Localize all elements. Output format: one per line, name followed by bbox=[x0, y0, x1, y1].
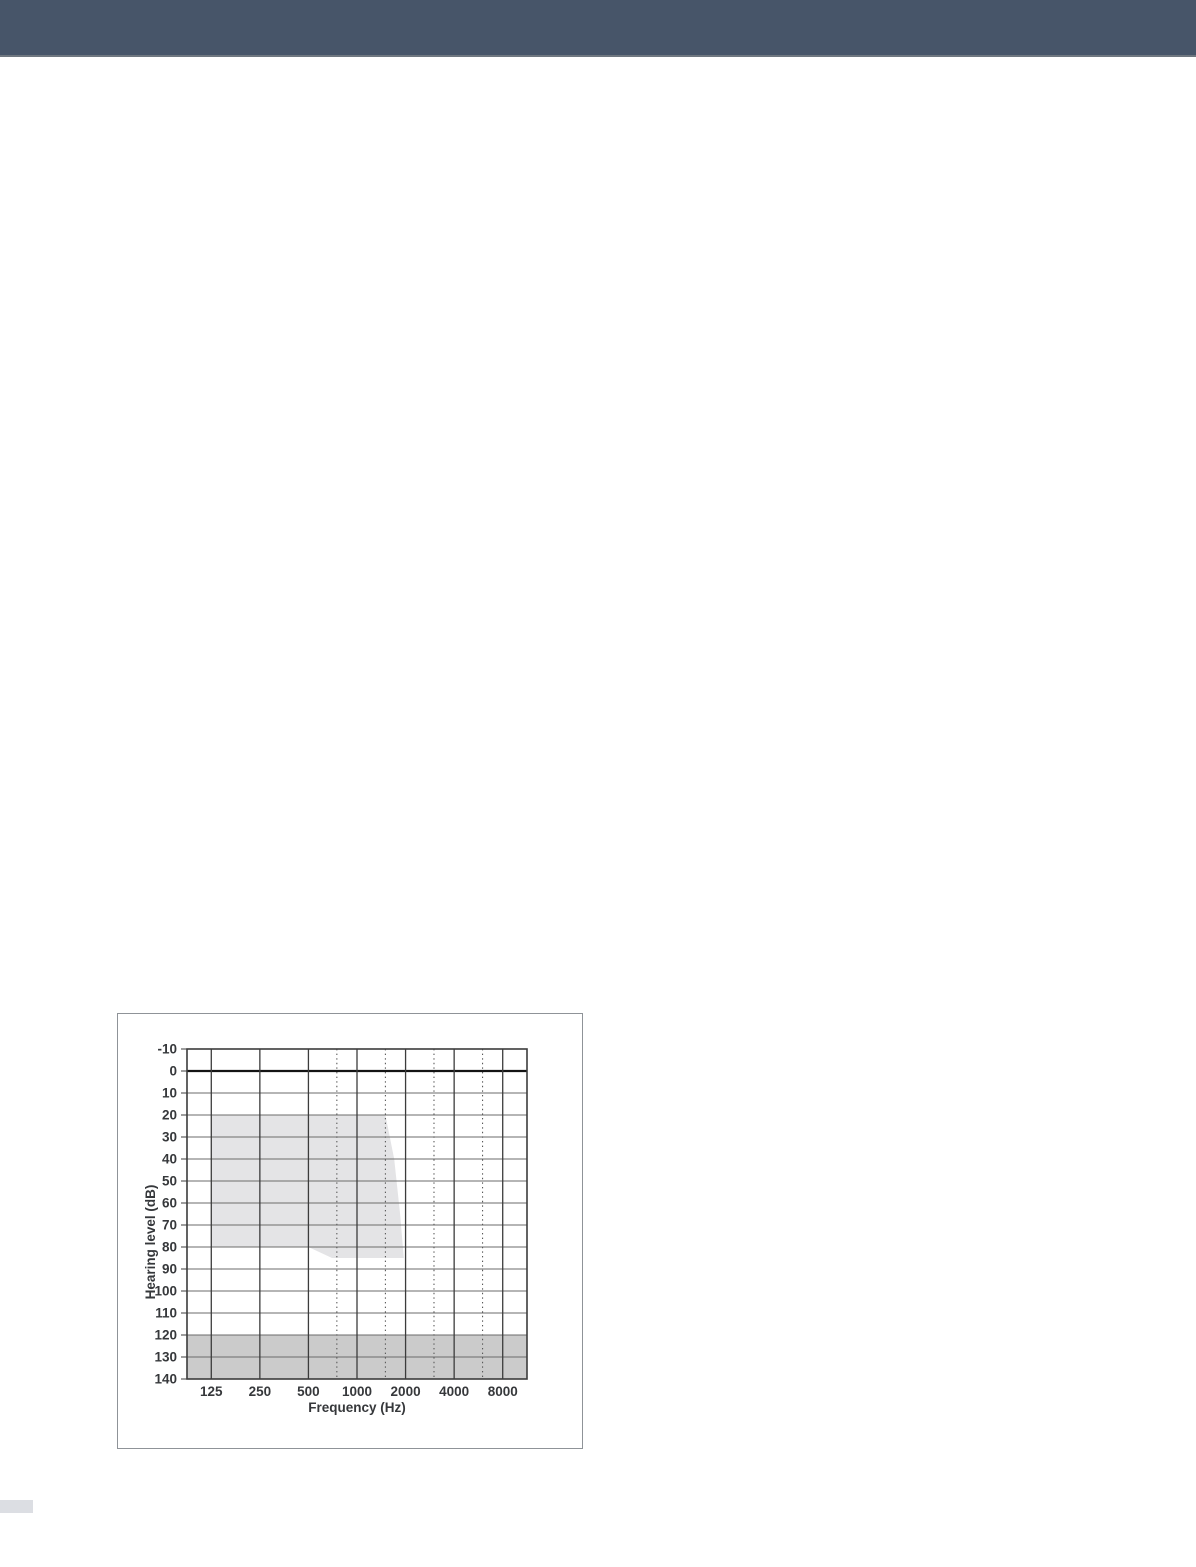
x-tick-label: 8000 bbox=[488, 1384, 518, 1399]
x-tick-label: 125 bbox=[200, 1384, 223, 1399]
document-page: -100102030405060708090100110120130140125… bbox=[0, 0, 1196, 1567]
top-banner bbox=[0, 0, 1196, 57]
y-tick-label: 30 bbox=[162, 1130, 177, 1145]
y-tick-label: 130 bbox=[154, 1350, 177, 1365]
x-tick-label: 2000 bbox=[391, 1384, 421, 1399]
y-tick-label: 20 bbox=[162, 1108, 177, 1123]
page-footer-fragment bbox=[0, 1500, 33, 1513]
y-tick-label: 110 bbox=[155, 1306, 177, 1321]
y-tick-label: -10 bbox=[157, 1042, 177, 1057]
y-tick-label: 120 bbox=[154, 1328, 177, 1343]
y-tick-label: 0 bbox=[169, 1064, 177, 1079]
x-tick-label: 4000 bbox=[439, 1384, 469, 1399]
y-axis-title: Hearing level (dB) bbox=[143, 1185, 158, 1300]
y-tick-label: 60 bbox=[162, 1196, 177, 1211]
fitting-range-panel: -100102030405060708090100110120130140125… bbox=[117, 1013, 583, 1449]
y-tick-label: 40 bbox=[162, 1152, 177, 1167]
y-tick-label: 70 bbox=[162, 1218, 177, 1233]
x-tick-label: 250 bbox=[249, 1384, 272, 1399]
fitting-range-area bbox=[211, 1115, 403, 1258]
y-tick-label: 50 bbox=[162, 1174, 177, 1189]
y-tick-label: 90 bbox=[162, 1262, 177, 1277]
y-tick-label: 10 bbox=[162, 1086, 177, 1101]
y-tick-label: 140 bbox=[154, 1372, 177, 1387]
audiogram-chart: -100102030405060708090100110120130140125… bbox=[118, 1014, 582, 1448]
y-tick-label: 80 bbox=[162, 1240, 177, 1255]
x-tick-labels: 1252505001000200040008000 bbox=[200, 1384, 518, 1399]
x-tick-label: 1000 bbox=[342, 1384, 372, 1399]
x-tick-label: 500 bbox=[297, 1384, 320, 1399]
x-axis-title: Frequency (Hz) bbox=[308, 1400, 406, 1415]
